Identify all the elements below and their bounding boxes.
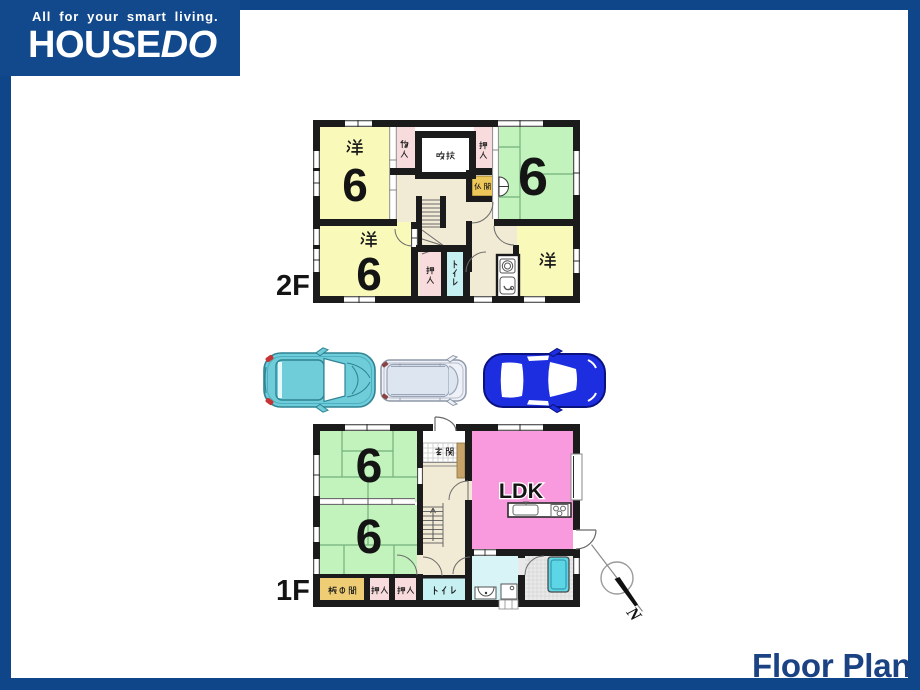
svg-text:6: 6 (356, 511, 383, 564)
svg-text:6: 6 (356, 440, 383, 493)
svg-text:LDK: LDK (499, 479, 544, 503)
svg-text:N: N (622, 603, 646, 626)
svg-text:6: 6 (342, 159, 368, 211)
svg-text:6: 6 (518, 147, 548, 207)
svg-text:6: 6 (356, 248, 382, 300)
